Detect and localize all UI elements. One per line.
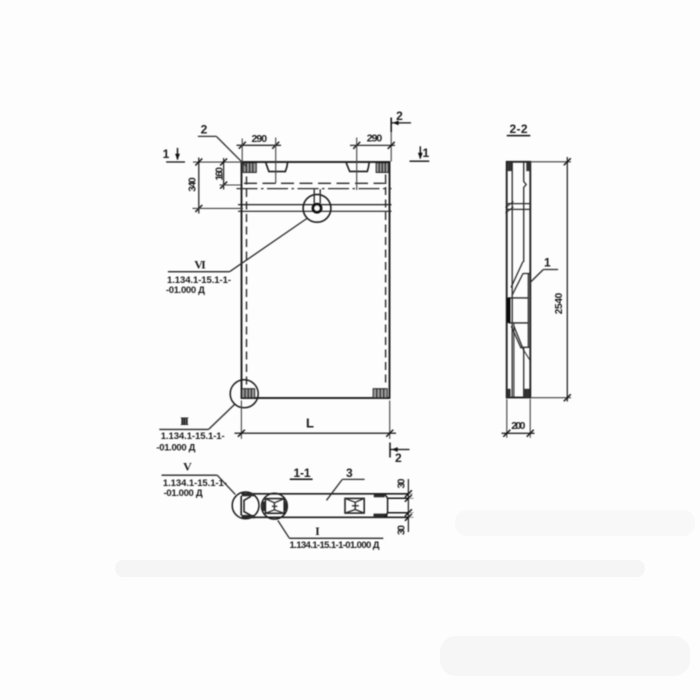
svg-text:V: V: [183, 460, 192, 474]
svg-text:290: 290: [252, 133, 268, 145]
svg-text:30: 30: [396, 478, 407, 488]
svg-text:200: 200: [511, 420, 525, 432]
svg-text:160: 160: [215, 167, 226, 181]
svg-text:340: 340: [187, 177, 198, 192]
svg-text:III: III: [180, 414, 189, 428]
svg-text:1: 1: [422, 146, 429, 160]
svg-text:3: 3: [346, 466, 353, 480]
svg-text:1: 1: [544, 256, 551, 270]
svg-text:L: L: [306, 416, 314, 431]
svg-text:2: 2: [396, 109, 403, 123]
svg-text:1.134.1-15.1-1-01.000 Д: 1.134.1-15.1-1-01.000 Д: [290, 540, 380, 551]
svg-text:30: 30: [396, 525, 407, 535]
svg-text:2: 2: [201, 123, 208, 137]
svg-text:290: 290: [367, 133, 383, 145]
svg-text:1-1: 1-1: [294, 466, 311, 480]
svg-text:1.134.1-15.1-1-: 1.134.1-15.1-1-: [161, 431, 225, 442]
svg-text:-01.000 Д: -01.000 Д: [164, 488, 203, 499]
svg-text:VI: VI: [194, 258, 206, 272]
svg-text:2-2: 2-2: [510, 122, 528, 136]
svg-text:1: 1: [163, 147, 170, 161]
svg-text:-01.000 Д: -01.000 Д: [156, 442, 195, 453]
svg-text:2: 2: [395, 451, 402, 465]
svg-text:-01.000 Д: -01.000 Д: [166, 285, 205, 296]
svg-text:2540: 2540: [554, 292, 565, 314]
svg-text:I: I: [315, 524, 320, 538]
